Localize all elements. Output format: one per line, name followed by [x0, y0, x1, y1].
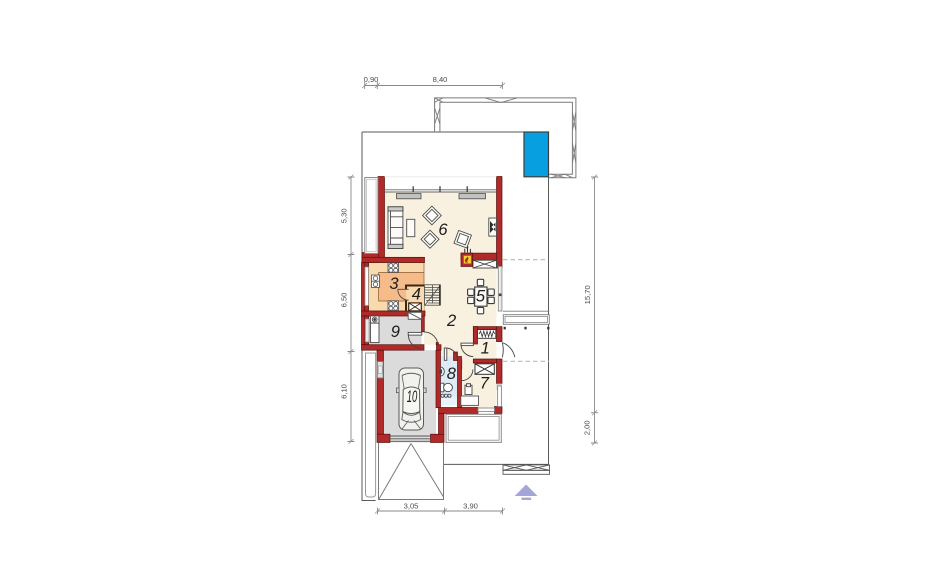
svg-text:2,00: 2,00 [583, 420, 592, 435]
svg-text:4: 4 [412, 286, 421, 304]
svg-text:15,70: 15,70 [583, 285, 592, 304]
svg-text:8: 8 [447, 365, 457, 383]
svg-text:0,90: 0,90 [364, 75, 379, 84]
svg-text:3,05: 3,05 [404, 502, 419, 511]
svg-text:8,40: 8,40 [433, 75, 448, 84]
svg-text:2: 2 [446, 312, 456, 330]
svg-text:5: 5 [476, 288, 486, 306]
svg-text:10: 10 [407, 388, 418, 406]
svg-text:6,10: 6,10 [340, 384, 349, 399]
svg-text:5,30: 5,30 [340, 208, 349, 223]
svg-text:1: 1 [481, 339, 490, 357]
svg-text:3: 3 [389, 275, 399, 293]
svg-text:6: 6 [438, 221, 448, 239]
svg-text:3,90: 3,90 [463, 502, 478, 511]
svg-text:9: 9 [391, 323, 400, 341]
svg-text:6,50: 6,50 [340, 293, 349, 308]
svg-text:7: 7 [480, 375, 490, 393]
